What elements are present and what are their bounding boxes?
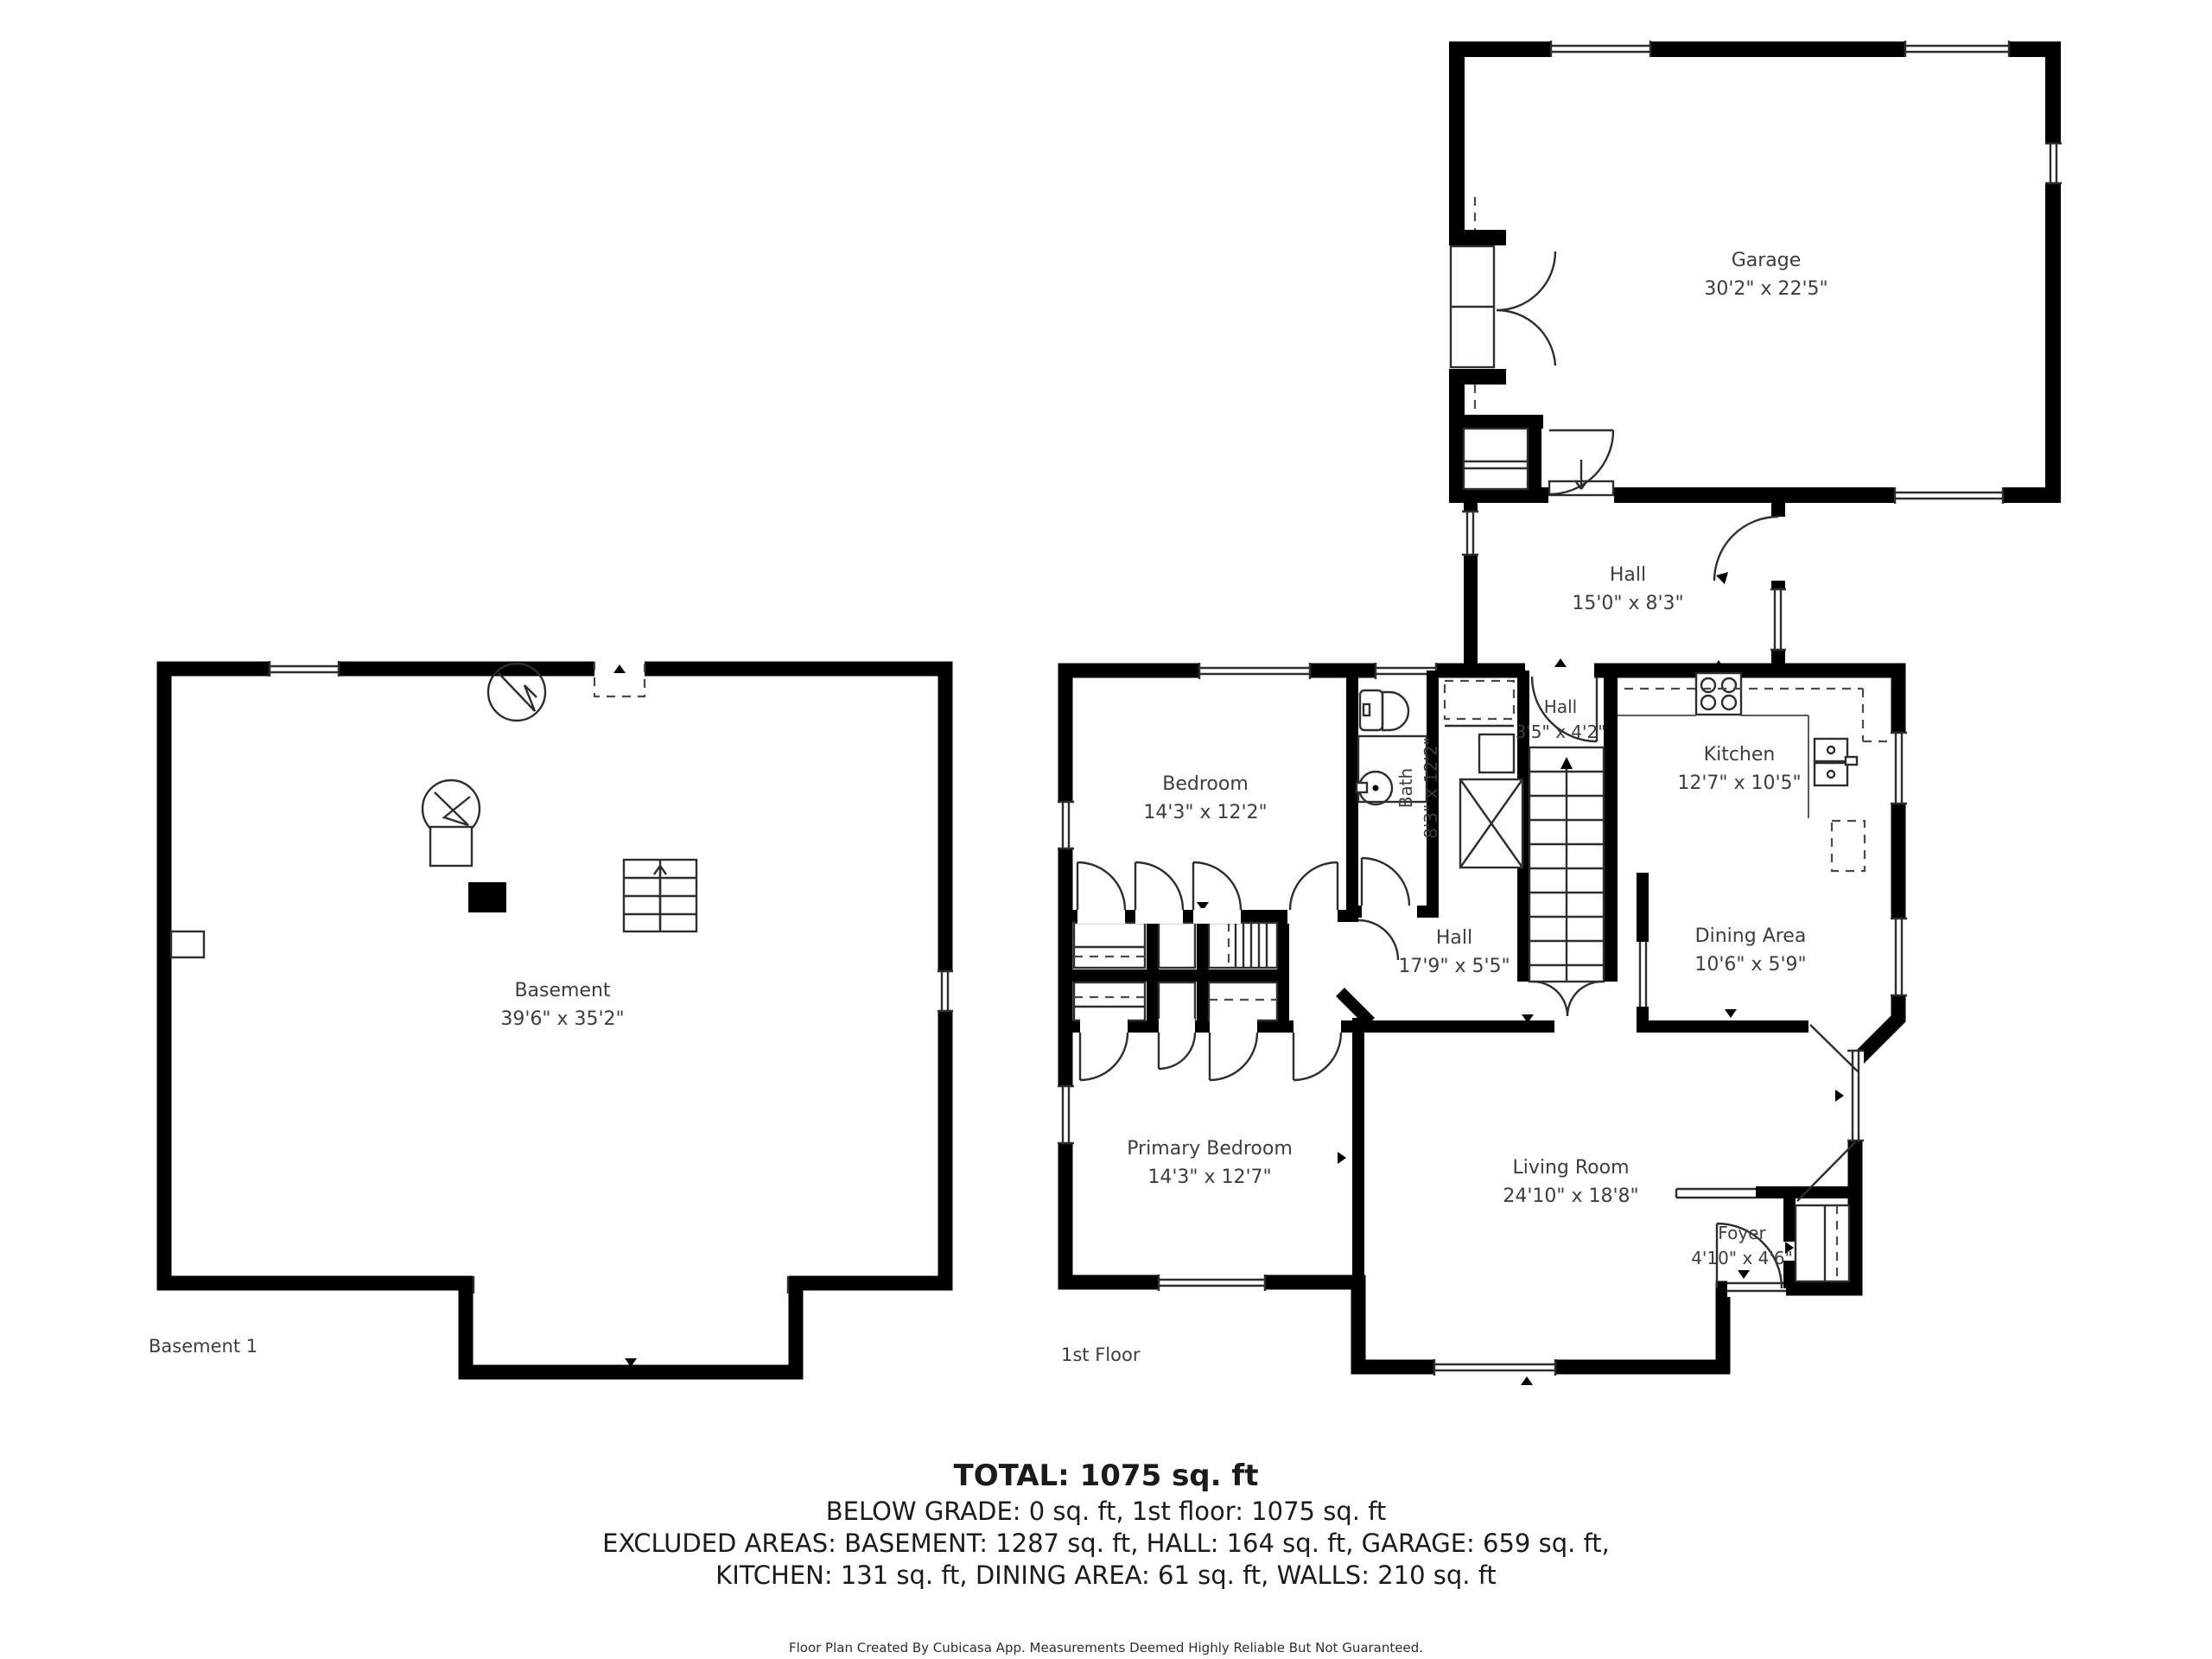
primary-window-left <box>1058 1086 1074 1143</box>
room-dims: 4'10" x 4'6" <box>1691 1246 1793 1271</box>
room-label-kitchen: Kitchen 12'7" x 10'5" <box>1677 741 1801 798</box>
hall-window-right <box>1770 589 1786 650</box>
summary-disclaimer: Floor Plan Created By Cubicasa App. Meas… <box>0 1640 2212 1656</box>
room-dims: 39'6" x 35'2" <box>500 1005 624 1033</box>
floor-label-basement: Basement 1 <box>149 1336 257 1357</box>
floor-plan-canvas <box>0 0 2212 1659</box>
room-label-bedroom: Bedroom 14'3" x 12'2" <box>1143 770 1267 827</box>
kitchen-window-right <box>1891 733 1907 804</box>
primary-closet-doors <box>1080 1019 1341 1080</box>
stove-icon <box>1696 673 1741 715</box>
room-name: Hall <box>1572 561 1683 589</box>
room-label-hall-main: Hall 17'9" x 5'5" <box>1398 924 1510 981</box>
summary-excluded-line2: KITCHEN: 131 sq. ft, DINING AREA: 61 sq.… <box>0 1560 2212 1590</box>
dining-opening-jambs <box>1640 942 1646 1007</box>
room-dims: 14'3" x 12'2" <box>1143 798 1267 827</box>
room-name: Living Room <box>1503 1154 1638 1182</box>
floor-label-first: 1st Floor <box>1061 1344 1140 1365</box>
garage-hall-door <box>1548 430 1614 504</box>
garage-closet <box>1457 415 1543 496</box>
room-name: Foyer <box>1691 1221 1793 1246</box>
bedroom-window-left <box>1058 802 1074 849</box>
room-dims: 14'3" x 12'7" <box>1127 1163 1293 1192</box>
floorplan-page: Basement 39'6" x 35'2" Garage 30'2" x 22… <box>0 0 2212 1659</box>
room-label-garage: Garage 30'2" x 22'5" <box>1704 246 1827 303</box>
room-dims: 30'2" x 22'5" <box>1704 275 1827 303</box>
room-name: Primary Bedroom <box>1127 1135 1293 1163</box>
room-dims: 15'0" x 8'3" <box>1572 589 1683 618</box>
room-label-bath: Bath 8'3" x 12'2" <box>1394 737 1444 839</box>
garage-window-top-1 <box>1551 41 1650 57</box>
room-name: Bedroom <box>1143 770 1267 798</box>
room-name: Dining Area <box>1694 922 1806 950</box>
bedroom-closet-doors <box>1077 862 1338 924</box>
basement-dashed-opening <box>594 661 645 696</box>
room-name: Hall <box>1398 924 1510 952</box>
hall-window-left <box>1462 512 1478 555</box>
window-marker <box>1835 1090 1844 1102</box>
dining-window-right <box>1891 918 1907 995</box>
hall-door-right <box>1714 517 1787 584</box>
room-name: Hall <box>1516 695 1606 720</box>
room-dims: 3'5" x 4'2" <box>1516 720 1606 745</box>
room-dims: 17'9" x 5'5" <box>1398 952 1510 981</box>
garage-window-right <box>2045 143 2062 183</box>
summary-total: TOTAL: 1075 sq. ft <box>0 1459 2212 1493</box>
fridge-icon <box>1815 739 1857 785</box>
room-dims: 24'10" x 18'8" <box>1503 1182 1638 1211</box>
utility-box-icon <box>430 827 472 866</box>
main-stairs-icon <box>1529 747 1604 982</box>
wall-marker <box>1338 1152 1346 1164</box>
living-window-bottom <box>1434 1359 1555 1385</box>
room-dims: 10'6" x 5'9" <box>1694 950 1806 979</box>
room-name: Kitchen <box>1677 741 1801 769</box>
garage-window-bottom <box>1895 487 2003 504</box>
bump-opening-jambs <box>474 1276 788 1294</box>
linen-closets <box>1445 681 1522 868</box>
room-name: Garage <box>1704 246 1827 275</box>
room-label-dining-area: Dining Area 10'6" x 5'9" <box>1694 922 1806 979</box>
bedroom-window-top <box>1199 663 1310 679</box>
garage-window-top-2 <box>1905 41 2009 57</box>
electrical-panel-icon <box>171 931 204 957</box>
corridor-closets-lower <box>1074 982 1277 1020</box>
basement-window-right <box>938 971 953 1011</box>
room-label-hall-small: Hall 3'5" x 4'2" <box>1516 695 1606 745</box>
room-label-hall-connector: Hall 15'0" x 8'3" <box>1572 561 1683 618</box>
room-label-basement: Basement 39'6" x 35'2" <box>500 976 624 1033</box>
room-name: Basement <box>500 976 624 1005</box>
chimney-icon <box>468 882 506 912</box>
toilet-icon <box>1360 690 1408 730</box>
basement-stairs-icon <box>624 860 696 931</box>
summary-below-grade: BELOW GRADE: 0 sq. ft, 1st floor: 1075 s… <box>0 1497 2212 1526</box>
room-dims: 8'3" x 12'2" <box>1419 737 1444 839</box>
room-label-living-room: Living Room 24'10" x 18'8" <box>1503 1154 1638 1211</box>
room-name: Bath <box>1394 737 1419 839</box>
bath-door <box>1362 858 1417 919</box>
room-label-primary-bedroom: Primary Bedroom 14'3" x 12'7" <box>1127 1135 1293 1192</box>
room-label-foyer: Foyer 4'10" x 4'6" <box>1691 1221 1793 1271</box>
basement-window-top <box>270 661 339 677</box>
summary-excluded-line1: EXCLUDED AREAS: BASEMENT: 1287 sq. ft, H… <box>0 1529 2212 1558</box>
primary-window-bottom <box>1159 1274 1265 1291</box>
room-dims: 12'7" x 10'5" <box>1677 769 1801 798</box>
